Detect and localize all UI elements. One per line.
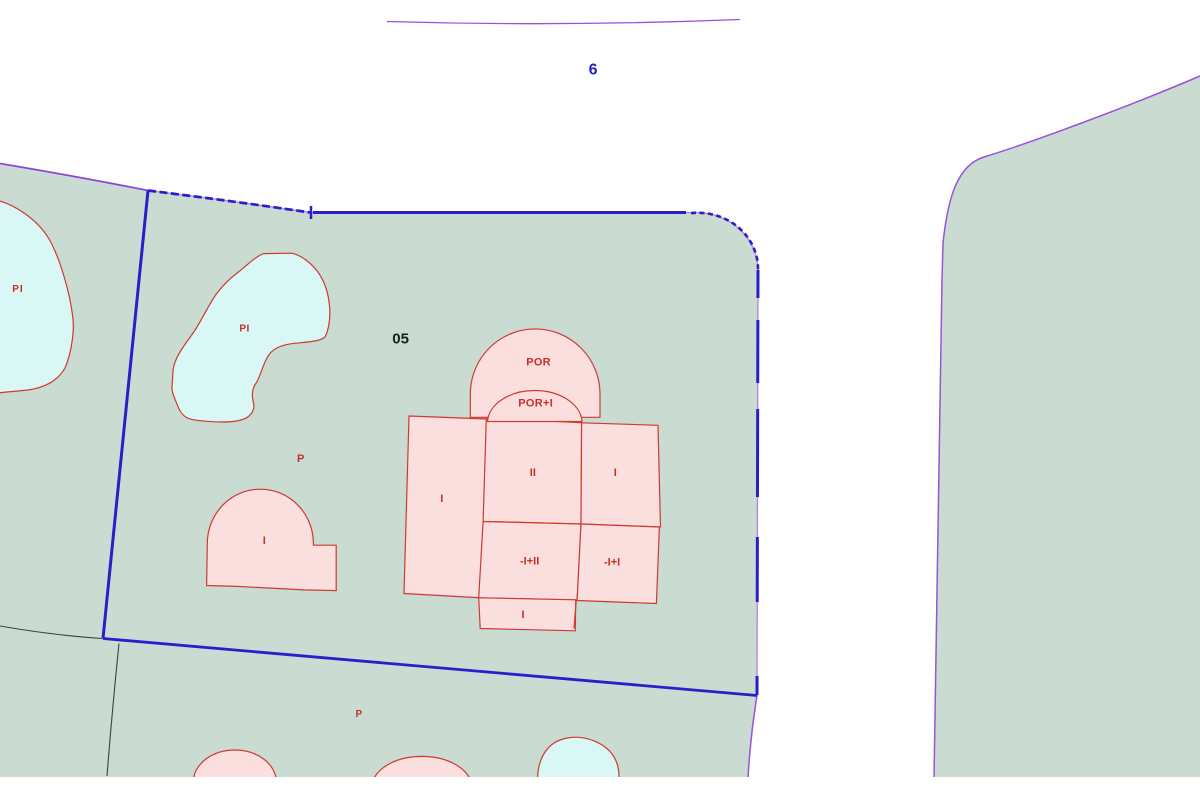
svg-text:-I+I: -I+I <box>604 556 620 568</box>
svg-text:I: I <box>614 467 617 479</box>
svg-text:05: 05 <box>392 331 409 348</box>
svg-text:P: P <box>356 709 363 720</box>
svg-text:I: I <box>522 609 525 621</box>
svg-text:-I+II: -I+II <box>520 556 539 568</box>
svg-text:POR+I: POR+I <box>518 398 553 410</box>
svg-text:I: I <box>440 493 443 505</box>
svg-text:I: I <box>263 535 266 547</box>
svg-text:POR: POR <box>526 356 551 368</box>
svg-text:PI: PI <box>12 284 23 295</box>
svg-text:6: 6 <box>589 62 598 79</box>
svg-text:PI: PI <box>239 324 249 335</box>
svg-text:II: II <box>530 467 536 479</box>
svg-text:P: P <box>297 453 304 465</box>
